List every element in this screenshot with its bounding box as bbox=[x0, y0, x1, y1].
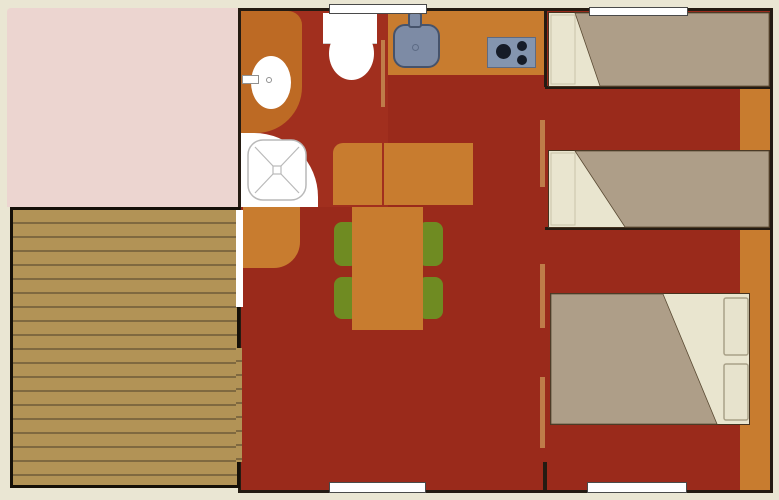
double-bed bbox=[550, 293, 750, 425]
shower-tray-icon bbox=[247, 139, 307, 201]
kitchen-faucet-icon bbox=[408, 12, 422, 28]
floorplan-canvas bbox=[0, 0, 779, 500]
sofa-left-section bbox=[333, 143, 382, 205]
basin-faucet-icon bbox=[242, 75, 259, 84]
corridor-wall bbox=[543, 462, 547, 490]
basin-knob-icon bbox=[266, 77, 272, 83]
window bbox=[587, 482, 687, 493]
window bbox=[329, 482, 426, 493]
corner-bench bbox=[243, 207, 300, 268]
burner-small-icon bbox=[517, 41, 527, 51]
burner-large-icon bbox=[496, 44, 511, 59]
single-bed-1 bbox=[548, 12, 770, 87]
annex-room bbox=[7, 8, 239, 207]
burner-small-icon bbox=[517, 55, 527, 65]
deck-doorway-opening bbox=[236, 210, 243, 307]
wardrobe-strip bbox=[740, 88, 770, 490]
corridor-wall bbox=[544, 11, 547, 87]
toilet-bowl-icon bbox=[329, 27, 374, 80]
hob-icon bbox=[487, 37, 536, 68]
single-bed-2 bbox=[548, 150, 770, 228]
bedroom-door-leaf bbox=[540, 377, 545, 448]
sofa-right-section bbox=[384, 143, 473, 205]
kitchen-drain-icon bbox=[412, 44, 419, 51]
dining-table bbox=[352, 207, 423, 330]
window bbox=[589, 7, 688, 16]
bedroom-door-leaf bbox=[540, 264, 545, 328]
bathroom-door-leaf bbox=[381, 40, 385, 107]
bedroom-door-leaf bbox=[540, 120, 545, 187]
window bbox=[329, 4, 427, 14]
deck-edge bbox=[236, 348, 242, 462]
wooden-deck bbox=[10, 207, 240, 488]
